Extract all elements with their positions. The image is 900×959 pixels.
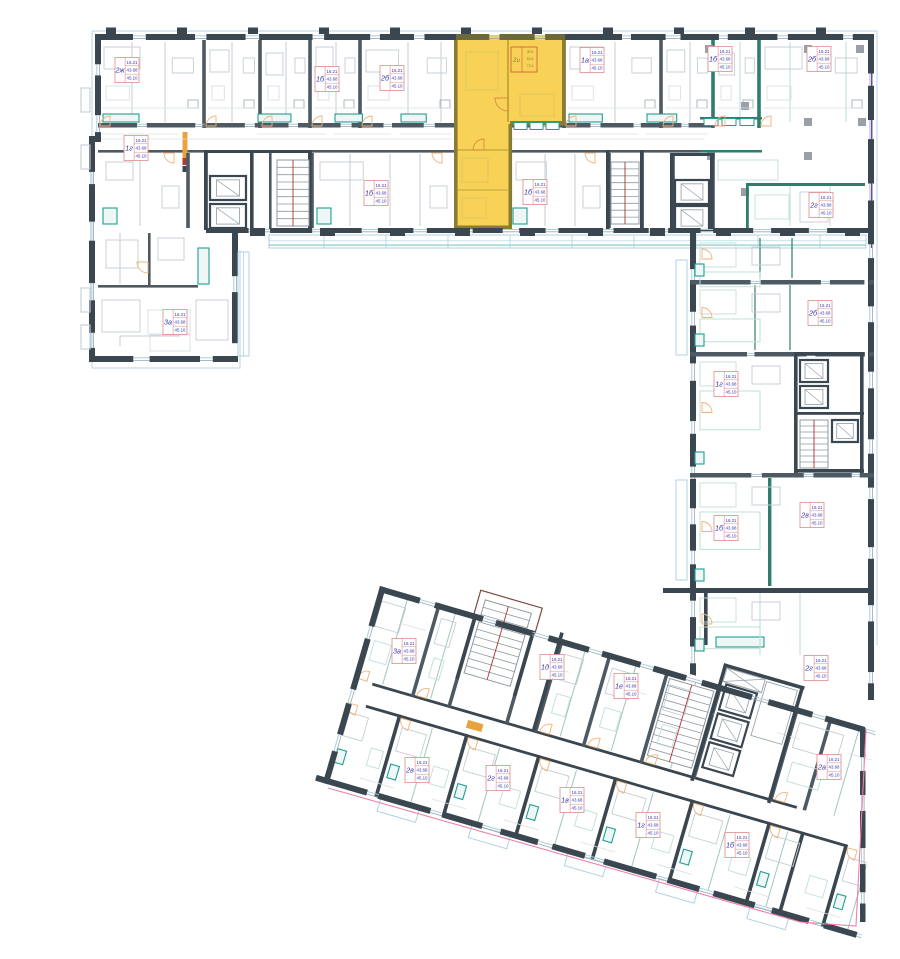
svg-text:2и: 2и <box>512 58 520 64</box>
svg-text:45.10: 45.10 <box>726 389 738 394</box>
svg-text:16.21: 16.21 <box>327 69 339 74</box>
svg-text:45.10: 45.10 <box>572 805 584 810</box>
svg-text:45.10: 45.10 <box>821 210 833 215</box>
svg-text:45.10: 45.10 <box>812 520 824 525</box>
svg-text:16.21: 16.21 <box>819 49 831 54</box>
svg-text:45.10: 45.10 <box>175 327 187 332</box>
svg-text:45.10: 45.10 <box>592 65 604 70</box>
svg-text:1б: 1б <box>726 841 735 850</box>
svg-text:45.10: 45.10 <box>417 775 429 780</box>
svg-text:16.21: 16.21 <box>498 768 510 773</box>
svg-text:43.68: 43.68 <box>535 190 547 195</box>
svg-text:45.10: 45.10 <box>136 153 148 158</box>
svg-text:16.21: 16.21 <box>592 50 604 55</box>
svg-text:45.10: 45.10 <box>816 673 828 678</box>
svg-text:2б: 2б <box>808 309 818 318</box>
svg-text:16.21: 16.21 <box>820 303 832 308</box>
svg-text:16.21: 16.21 <box>392 68 404 73</box>
svg-text:43.68: 43.68 <box>127 68 139 73</box>
svg-text:1б: 1б <box>715 524 724 533</box>
svg-text:16.21: 16.21 <box>816 658 828 663</box>
svg-text:3а: 3а <box>164 318 172 327</box>
svg-text:16.21: 16.21 <box>812 505 824 510</box>
svg-text:3а: 3а <box>393 647 401 656</box>
svg-text:1е: 1е <box>615 682 623 691</box>
svg-text:43.68: 43.68 <box>820 311 832 316</box>
svg-text:43.68: 43.68 <box>552 665 564 670</box>
svg-text:45.10: 45.10 <box>376 198 388 203</box>
svg-text:43.68: 43.68 <box>175 320 187 325</box>
svg-text:2б: 2б <box>380 74 390 83</box>
svg-text:62.6: 62.6 <box>527 57 534 61</box>
svg-text:43.68: 43.68 <box>829 765 841 770</box>
svg-text:43.68: 43.68 <box>572 798 584 803</box>
svg-text:45.10: 45.10 <box>327 84 339 89</box>
svg-text:16.21: 16.21 <box>726 518 738 523</box>
svg-text:45.10: 45.10 <box>720 64 732 69</box>
svg-text:45.10: 45.10 <box>498 783 510 788</box>
svg-text:43.68: 43.68 <box>821 203 833 208</box>
svg-text:16.21: 16.21 <box>726 374 738 379</box>
svg-text:1г: 1г <box>637 821 645 830</box>
svg-text:16.21: 16.21 <box>417 760 429 765</box>
svg-text:43.68: 43.68 <box>816 666 828 671</box>
svg-text:45.10: 45.10 <box>726 533 738 538</box>
svg-text:16.21: 16.21 <box>376 183 388 188</box>
svg-text:16.21: 16.21 <box>648 815 660 820</box>
svg-text:45.10: 45.10 <box>819 64 831 69</box>
svg-text:43.68: 43.68 <box>417 768 429 773</box>
svg-text:1г: 1г <box>125 144 133 153</box>
svg-text:2а: 2а <box>817 763 826 772</box>
svg-text:1в: 1в <box>561 796 569 805</box>
svg-text:1б: 1б <box>709 55 718 64</box>
svg-text:43.68: 43.68 <box>812 513 824 518</box>
svg-text:43.68: 43.68 <box>376 191 388 196</box>
svg-text:43.68: 43.68 <box>626 684 638 689</box>
svg-text:2б: 2б <box>807 55 817 64</box>
svg-text:43.68: 43.68 <box>392 76 404 81</box>
svg-text:1а: 1а <box>581 56 589 65</box>
svg-text:45.10: 45.10 <box>127 75 139 80</box>
svg-text:43.68: 43.68 <box>136 146 148 151</box>
svg-text:2ж: 2ж <box>115 66 126 75</box>
svg-text:45.10: 45.10 <box>648 830 660 835</box>
svg-text:1б: 1б <box>524 188 533 197</box>
svg-text:43.68: 43.68 <box>726 526 738 531</box>
svg-text:45.10: 45.10 <box>552 672 564 677</box>
svg-text:16.21: 16.21 <box>720 49 732 54</box>
svg-text:16.21: 16.21 <box>127 60 139 65</box>
svg-text:43.68: 43.68 <box>737 843 749 848</box>
svg-text:43.68: 43.68 <box>327 77 339 82</box>
svg-text:16.21: 16.21 <box>737 835 749 840</box>
svg-text:43.68: 43.68 <box>819 57 831 62</box>
svg-text:45.10: 45.10 <box>404 656 416 661</box>
svg-text:1д: 1д <box>541 663 549 672</box>
svg-text:45.10: 45.10 <box>737 850 749 855</box>
svg-text:30.9: 30.9 <box>527 50 534 54</box>
svg-text:43.68: 43.68 <box>498 776 510 781</box>
svg-text:1б: 1б <box>316 75 325 84</box>
svg-text:1б: 1б <box>365 189 374 198</box>
svg-text:2г: 2г <box>809 201 818 210</box>
svg-text:16.21: 16.21 <box>136 138 148 143</box>
svg-text:43.68: 43.68 <box>726 382 738 387</box>
svg-text:16.21: 16.21 <box>821 195 833 200</box>
svg-text:16.21: 16.21 <box>404 641 416 646</box>
svg-text:16.21: 16.21 <box>572 790 584 795</box>
svg-text:2в: 2в <box>405 766 414 775</box>
svg-text:16.21: 16.21 <box>175 312 187 317</box>
svg-text:45.10: 45.10 <box>829 772 841 777</box>
svg-text:16.21: 16.21 <box>829 757 841 762</box>
svg-text:16.21: 16.21 <box>552 657 564 662</box>
svg-text:16.21: 16.21 <box>626 676 638 681</box>
svg-text:45.10: 45.10 <box>820 318 832 323</box>
svg-text:2г: 2г <box>486 774 495 783</box>
svg-text:43.68: 43.68 <box>592 58 604 63</box>
svg-text:45.10: 45.10 <box>535 197 547 202</box>
svg-text:72.4: 72.4 <box>527 64 534 68</box>
svg-text:45.10: 45.10 <box>626 691 638 696</box>
svg-text:2г: 2г <box>804 664 813 673</box>
svg-text:45.10: 45.10 <box>392 83 404 88</box>
svg-text:16.21: 16.21 <box>535 182 547 187</box>
svg-text:2в: 2в <box>800 511 809 520</box>
svg-text:43.68: 43.68 <box>648 823 660 828</box>
svg-text:43.68: 43.68 <box>404 649 416 654</box>
svg-text:43.68: 43.68 <box>720 57 732 62</box>
svg-text:1г: 1г <box>715 380 723 389</box>
